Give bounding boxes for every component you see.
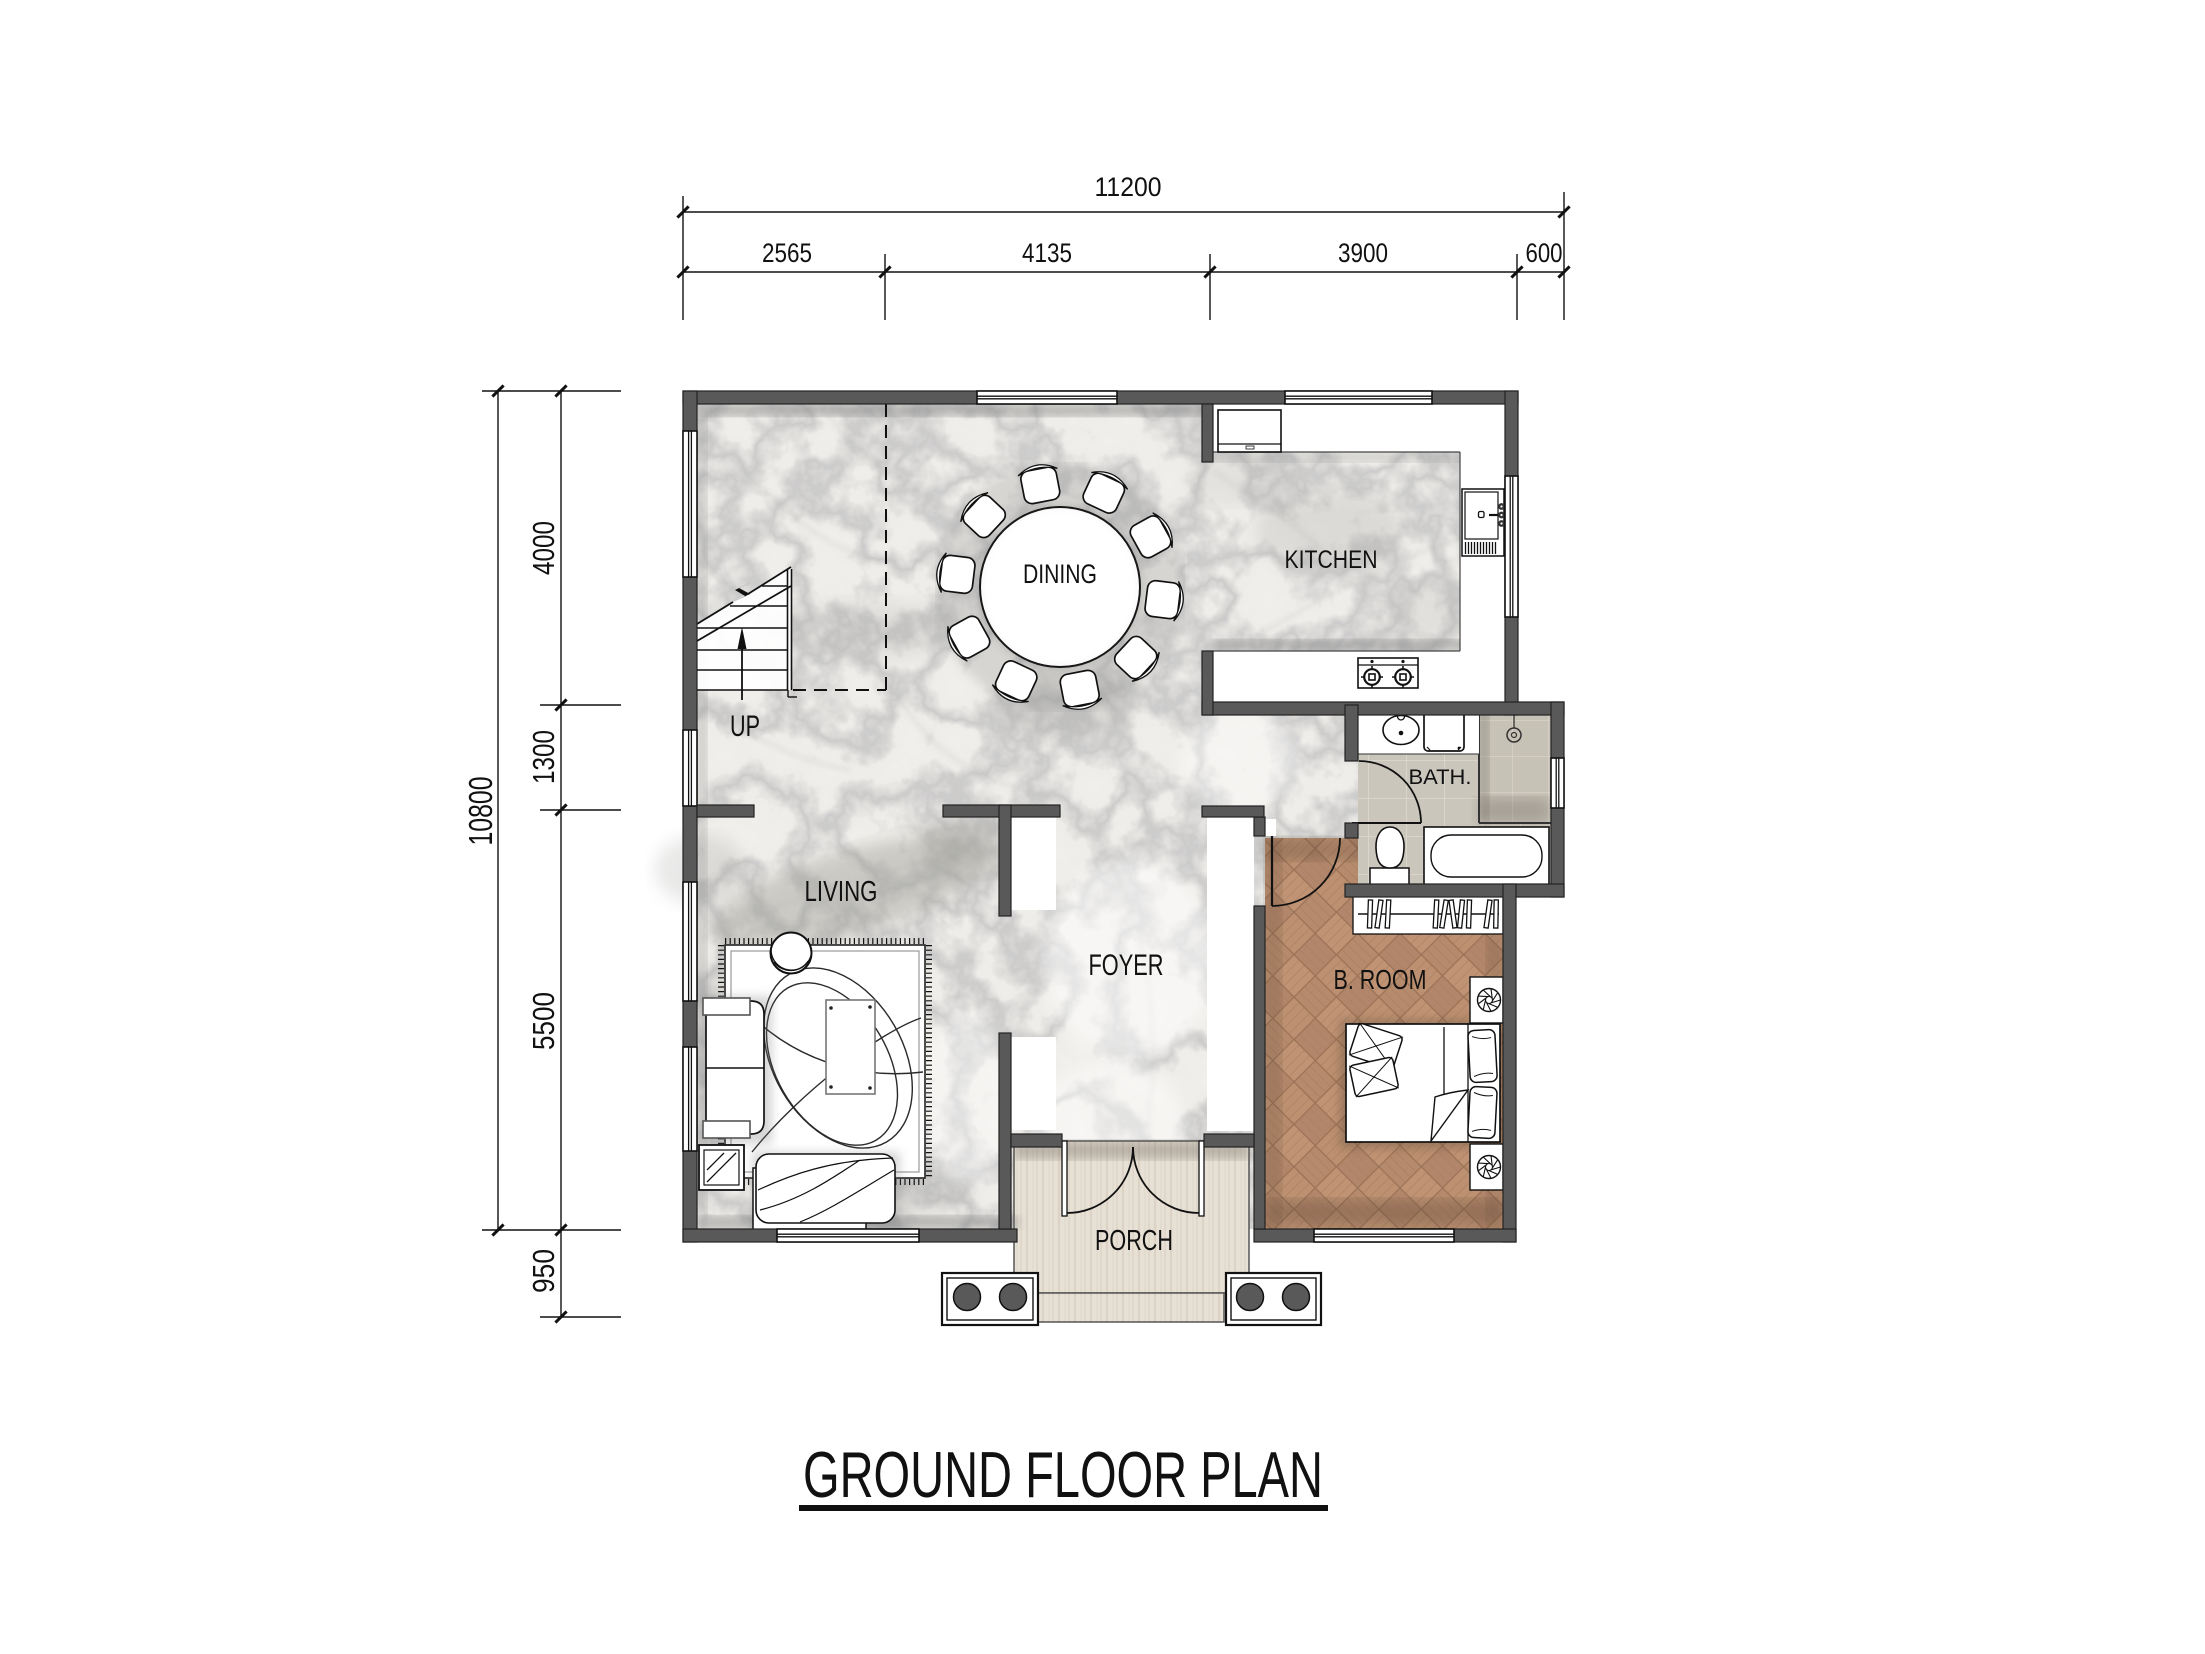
svg-text:KITCHEN: KITCHEN <box>1285 546 1378 574</box>
svg-text:950: 950 <box>526 1249 561 1293</box>
svg-text:B. ROOM: B. ROOM <box>1334 964 1427 995</box>
svg-text:GROUND FLOOR PLAN: GROUND FLOOR PLAN <box>803 1438 1323 1511</box>
svg-text:10800: 10800 <box>462 777 499 846</box>
svg-text:PORCH: PORCH <box>1095 1225 1173 1257</box>
svg-text:UP: UP <box>730 710 760 743</box>
svg-text:11200: 11200 <box>1095 172 1162 202</box>
svg-text:3900: 3900 <box>1338 238 1388 268</box>
svg-text:2565: 2565 <box>762 238 812 268</box>
svg-text:1300: 1300 <box>526 730 561 784</box>
svg-text:BATH.: BATH. <box>1409 766 1472 789</box>
svg-text:5500: 5500 <box>526 992 561 1050</box>
svg-text:DINING: DINING <box>1023 559 1097 589</box>
svg-text:FOYER: FOYER <box>1089 949 1164 982</box>
svg-text:600: 600 <box>1526 238 1563 268</box>
svg-text:4135: 4135 <box>1022 238 1072 268</box>
svg-text:LIVING: LIVING <box>805 876 878 908</box>
svg-text:4000: 4000 <box>526 521 561 575</box>
